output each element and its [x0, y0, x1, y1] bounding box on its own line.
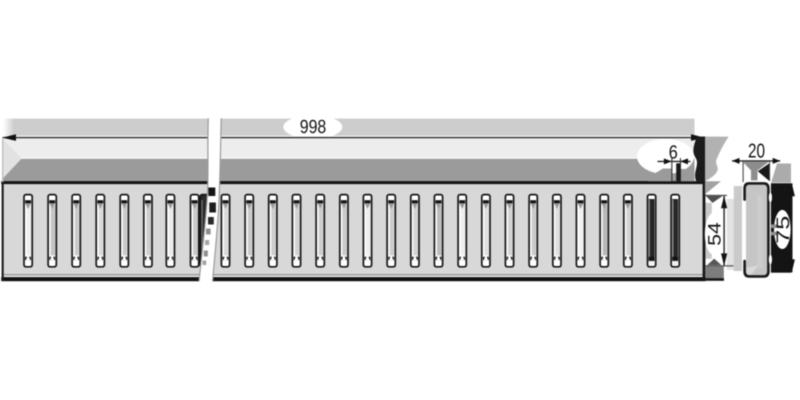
- svg-text:75: 75: [773, 216, 793, 244]
- svg-text:998: 998: [300, 117, 327, 138]
- svg-text:20: 20: [748, 140, 765, 162]
- svg-text:6: 6: [669, 142, 678, 163]
- svg-text:54: 54: [705, 222, 725, 246]
